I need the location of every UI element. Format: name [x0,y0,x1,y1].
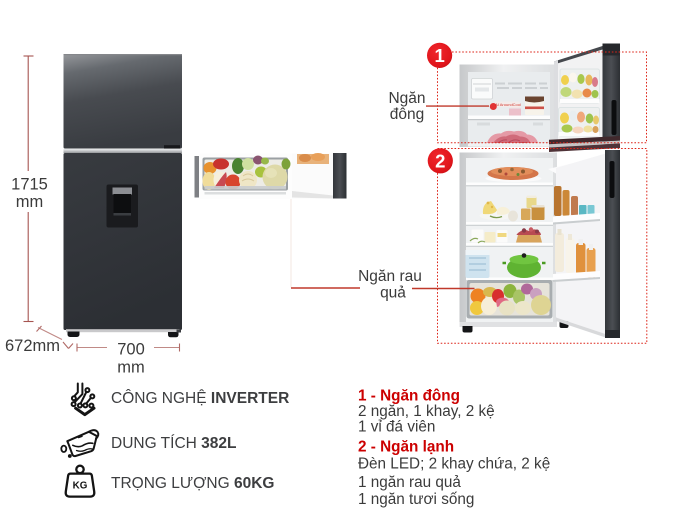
svg-text:mm: mm [16,193,44,211]
svg-text:1 ngăn rau quả: 1 ngăn rau quả [358,474,461,491]
svg-text:2 - Ngăn lạnh: 2 - Ngăn lạnh [358,439,454,456]
svg-text:1 ngăn tươi sống: 1 ngăn tươi sống [358,491,474,508]
svg-text:đông: đông [390,106,424,123]
svg-text:AI AroundCool: AI AroundCool [495,102,521,107]
svg-text:1: 1 [434,45,444,66]
svg-text:KG: KG [73,481,88,492]
svg-text:CÔNG NGHỆ INVERTER: CÔNG NGHỆ INVERTER [111,390,289,407]
svg-text:DUNG TÍCH 382L: DUNG TÍCH 382L [111,435,236,452]
svg-text:672mm: 672mm [5,337,60,355]
svg-text:quả: quả [380,285,406,302]
svg-text:1 vỉ đá viên: 1 vỉ đá viên [358,419,435,436]
svg-text:mm: mm [117,359,145,377]
svg-text:1 - Ngăn đông: 1 - Ngăn đông [358,388,460,405]
svg-text:2 ngăn, 1 khay, 2 kệ: 2 ngăn, 1 khay, 2 kệ [358,403,495,420]
svg-text:1715: 1715 [11,176,48,194]
svg-text:700: 700 [117,341,145,359]
svg-text:2: 2 [435,150,445,171]
svg-text:Ngăn: Ngăn [388,90,425,107]
svg-text:Đèn LED; 2 khay chứa, 2 kệ: Đèn LED; 2 khay chứa, 2 kệ [358,456,550,473]
svg-text:TRỌNG LƯỢNG 60KG: TRỌNG LƯỢNG 60KG [111,475,274,492]
svg-text:Ngăn rau: Ngăn rau [358,268,422,285]
